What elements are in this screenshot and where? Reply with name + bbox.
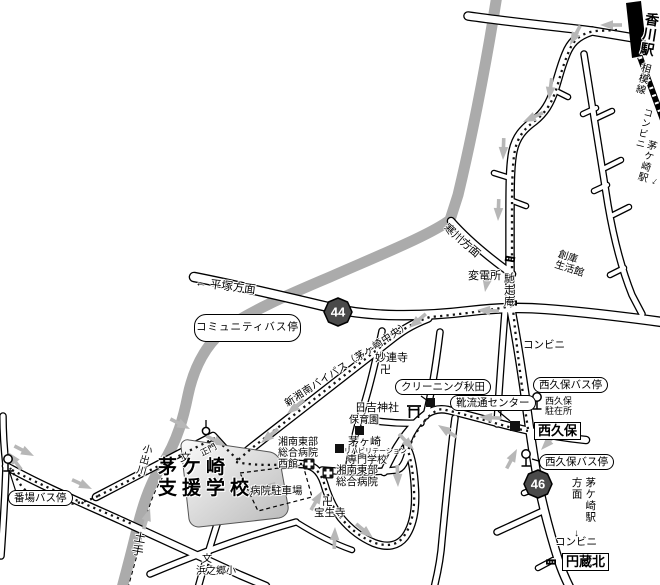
community-bus-stop-point [202, 427, 209, 434]
route-46-number: 46 [531, 477, 545, 492]
route-44-number: 44 [331, 305, 346, 320]
map-canvas: 44 46 [0, 0, 660, 585]
route-46-shield: 46 [524, 470, 552, 498]
kagawa-station-box [626, 1, 647, 58]
hospital-west-icon [304, 459, 315, 470]
route-44-shield: 44 [324, 298, 352, 326]
sagami-line-railway [626, 1, 660, 120]
torii-icon [407, 406, 421, 418]
route-map: 44 46 香川駅 相模線 コンビニ 茅ケ崎駅 ↓ 寒川方面 変電所 馳走庵 創… [0, 0, 660, 585]
hospital-icon [323, 468, 334, 479]
